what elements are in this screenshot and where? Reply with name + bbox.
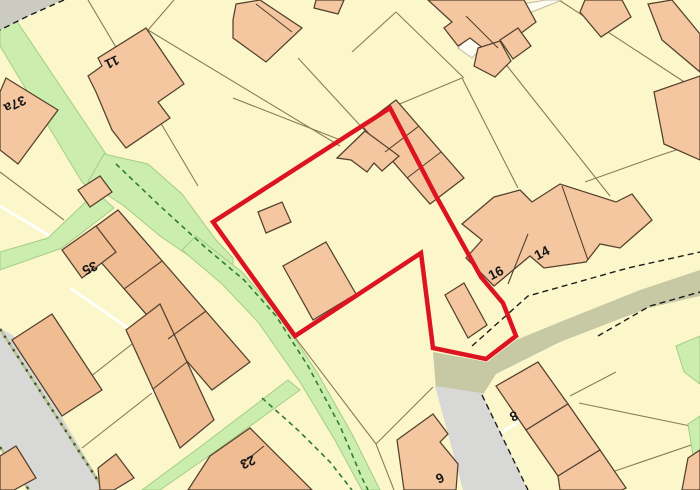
map-viewport[interactable]: 1137a3523161486 — [0, 0, 700, 490]
map-canvas: 1137a3523161486 — [0, 0, 700, 490]
